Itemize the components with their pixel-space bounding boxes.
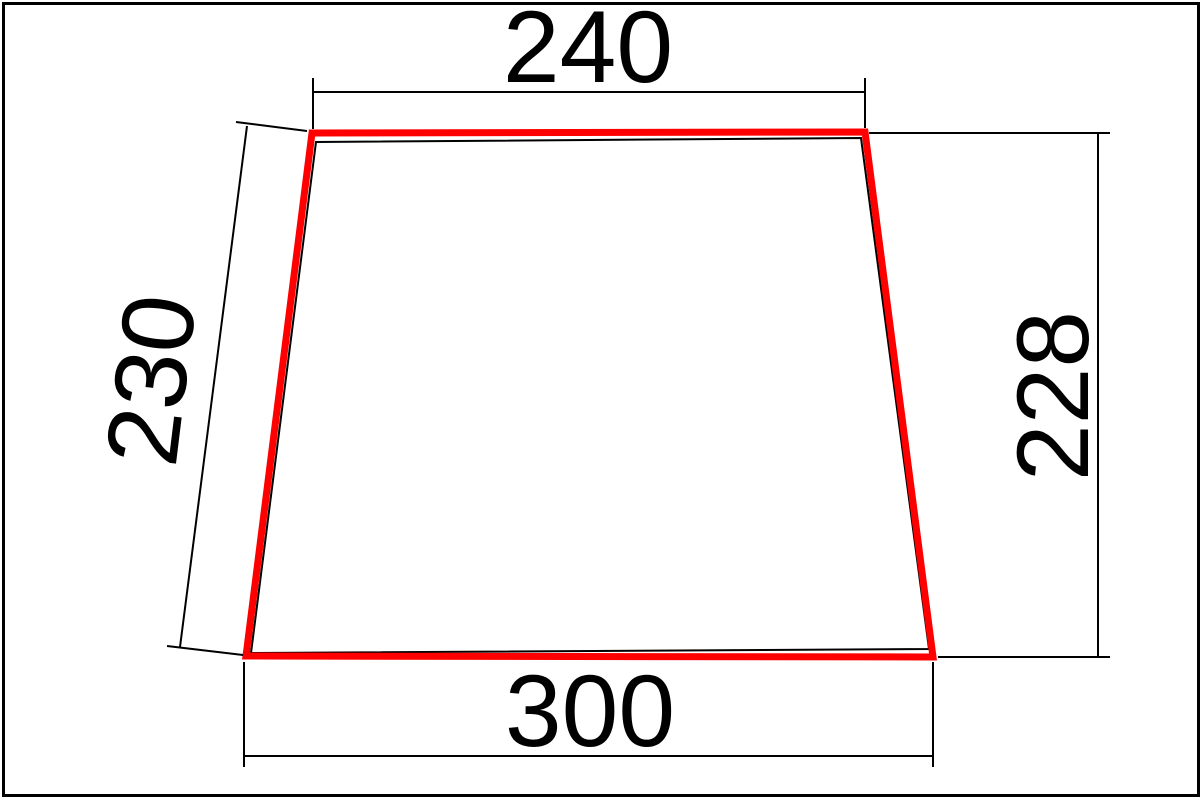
panel-underlay-outline xyxy=(251,138,929,653)
dim-label-right-side: 228 xyxy=(1002,311,1104,481)
panel-outline xyxy=(246,132,933,657)
dim-label-bottom-width: 300 xyxy=(505,660,675,762)
drawing-page: 240 300 228 230 xyxy=(0,0,1203,803)
dim-label-left-side: 230 xyxy=(90,289,212,470)
ext-line-left-side-bottom xyxy=(167,646,243,655)
dim-label-top-width: 240 xyxy=(503,0,673,98)
